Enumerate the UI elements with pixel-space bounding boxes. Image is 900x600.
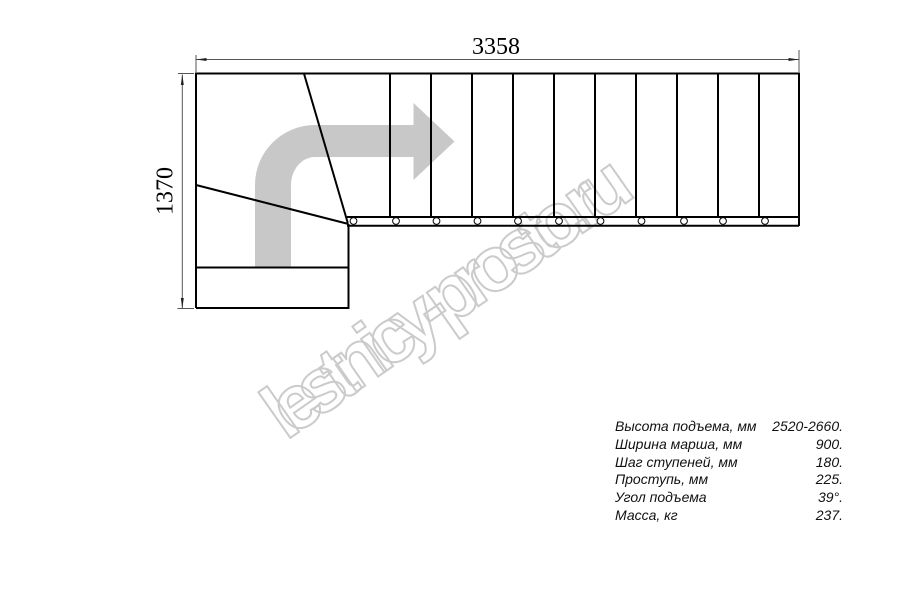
svg-text:1370: 1370 [153,167,179,215]
svg-text:3358: 3358 [472,34,520,60]
svg-text:lestnicy-prosto.ru: lestnicy-prosto.ru [246,141,643,455]
